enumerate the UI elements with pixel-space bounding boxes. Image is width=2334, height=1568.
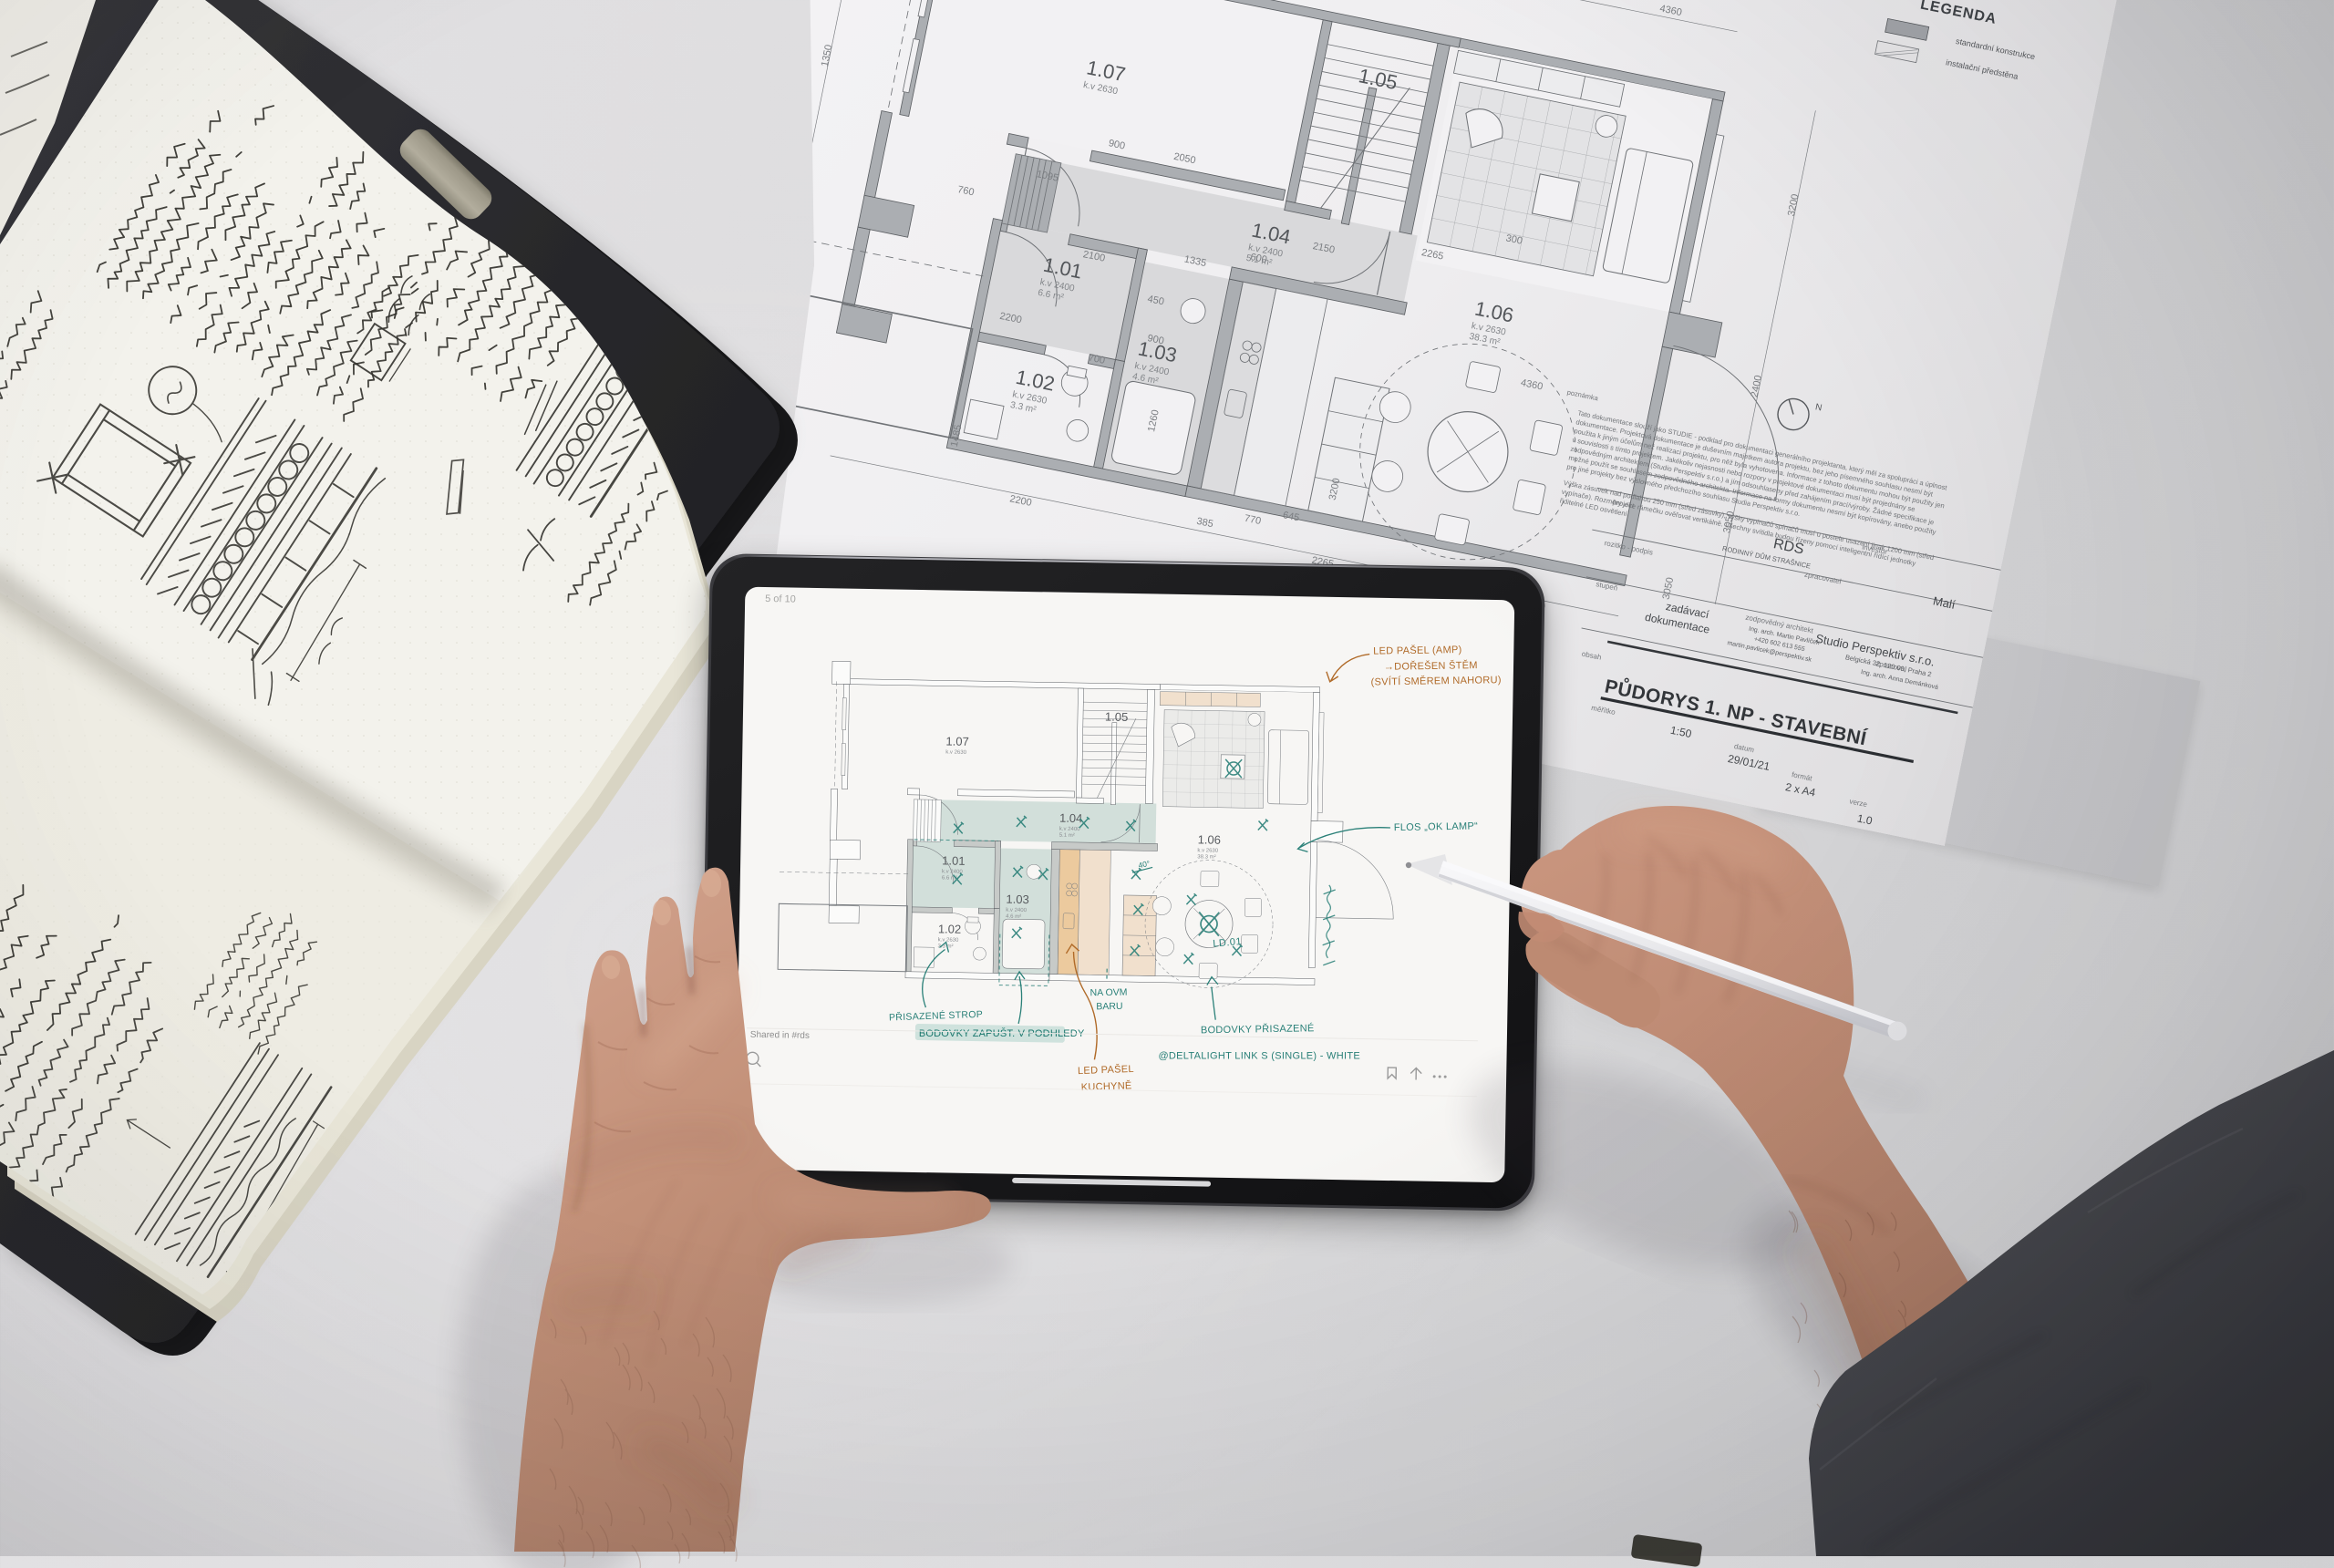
svg-text:LD.01: LD.01 bbox=[1213, 936, 1243, 950]
svg-text:LEGENDA: LEGENDA bbox=[1919, 0, 1998, 27]
svg-text:(SVÍTÍ SMĚREM NAHORU): (SVÍTÍ SMĚREM NAHORU) bbox=[1370, 674, 1501, 687]
svg-text:29/01/21: 29/01/21 bbox=[1727, 752, 1771, 773]
svg-text:PŮDORYS 1. NP - STAVEBNÍ: PŮDORYS 1. NP - STAVEBNÍ bbox=[1603, 674, 1869, 750]
svg-text:→DOŘEŠEN ŠTĚM: →DOŘEŠEN ŠTĚM bbox=[1384, 659, 1478, 673]
svg-text:zpracovatel: zpracovatel bbox=[1803, 571, 1842, 586]
svg-text:5 of 10: 5 of 10 bbox=[765, 593, 796, 605]
svg-text:obsah: obsah bbox=[1581, 650, 1602, 662]
svg-text:poznámka: poznámka bbox=[1566, 388, 1600, 403]
svg-text:standardní konstrukce: standardní konstrukce bbox=[1955, 36, 2036, 61]
svg-text:datum: datum bbox=[1733, 742, 1755, 754]
svg-text:Malí: Malí bbox=[1932, 593, 1957, 612]
svg-text:LED PAŠEL (AMP): LED PAŠEL (AMP) bbox=[1373, 644, 1462, 657]
svg-text:1:50: 1:50 bbox=[1669, 724, 1693, 740]
svg-text:N: N bbox=[1814, 402, 1823, 413]
svg-text:měřítko: měřítko bbox=[1591, 704, 1616, 717]
svg-text:instalační předstěna: instalační předstěna bbox=[1945, 57, 2019, 81]
